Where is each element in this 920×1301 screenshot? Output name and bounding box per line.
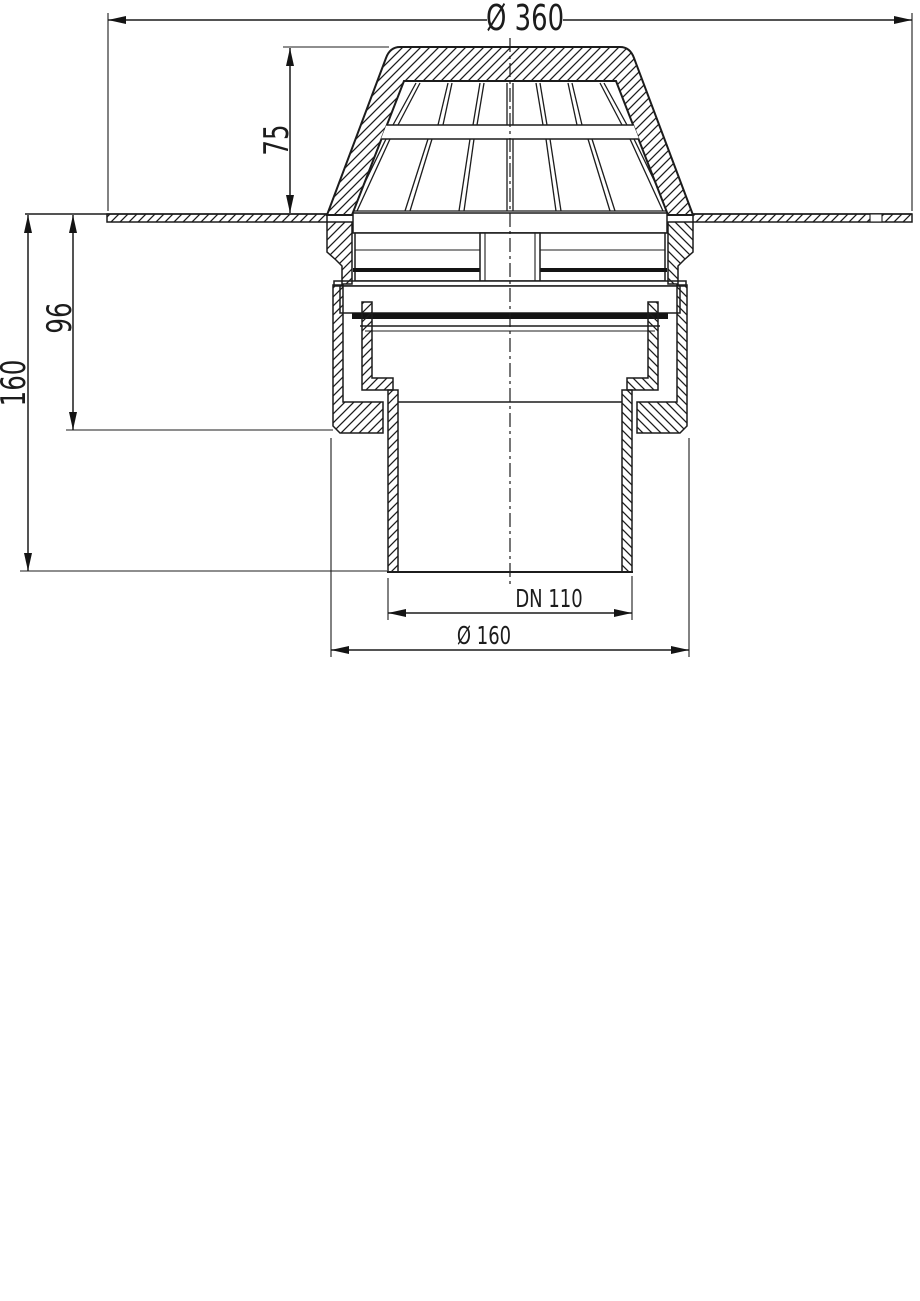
dim-dome-height-label: 75 xyxy=(257,124,296,155)
seal-line-right xyxy=(540,268,667,272)
seal-line-left xyxy=(353,268,480,272)
dome-skirt xyxy=(327,222,352,284)
technical-drawing-canvas: Ø 360 75 96 160 DN 110 xyxy=(0,0,920,1301)
dimension-upper-body-height: 96 xyxy=(40,215,333,430)
dim-lower-diameter-label: Ø 160 xyxy=(457,622,511,651)
flange-weld-notch xyxy=(870,214,882,222)
dim-upper-body-height-label: 96 xyxy=(40,302,79,333)
dimension-outer-diameter: Ø 360 xyxy=(108,0,912,211)
flange-left xyxy=(107,214,327,222)
dim-total-height-label: 160 xyxy=(0,360,33,407)
dim-outer-diameter-label: Ø 360 xyxy=(486,0,564,39)
outlet-pipe-wall xyxy=(388,390,398,572)
dimension-total-height: 160 xyxy=(0,215,387,571)
roof-drain-section-drawing: Ø 360 75 96 160 DN 110 xyxy=(0,0,920,1301)
dim-outlet-nominal-label: DN 110 xyxy=(515,585,582,614)
